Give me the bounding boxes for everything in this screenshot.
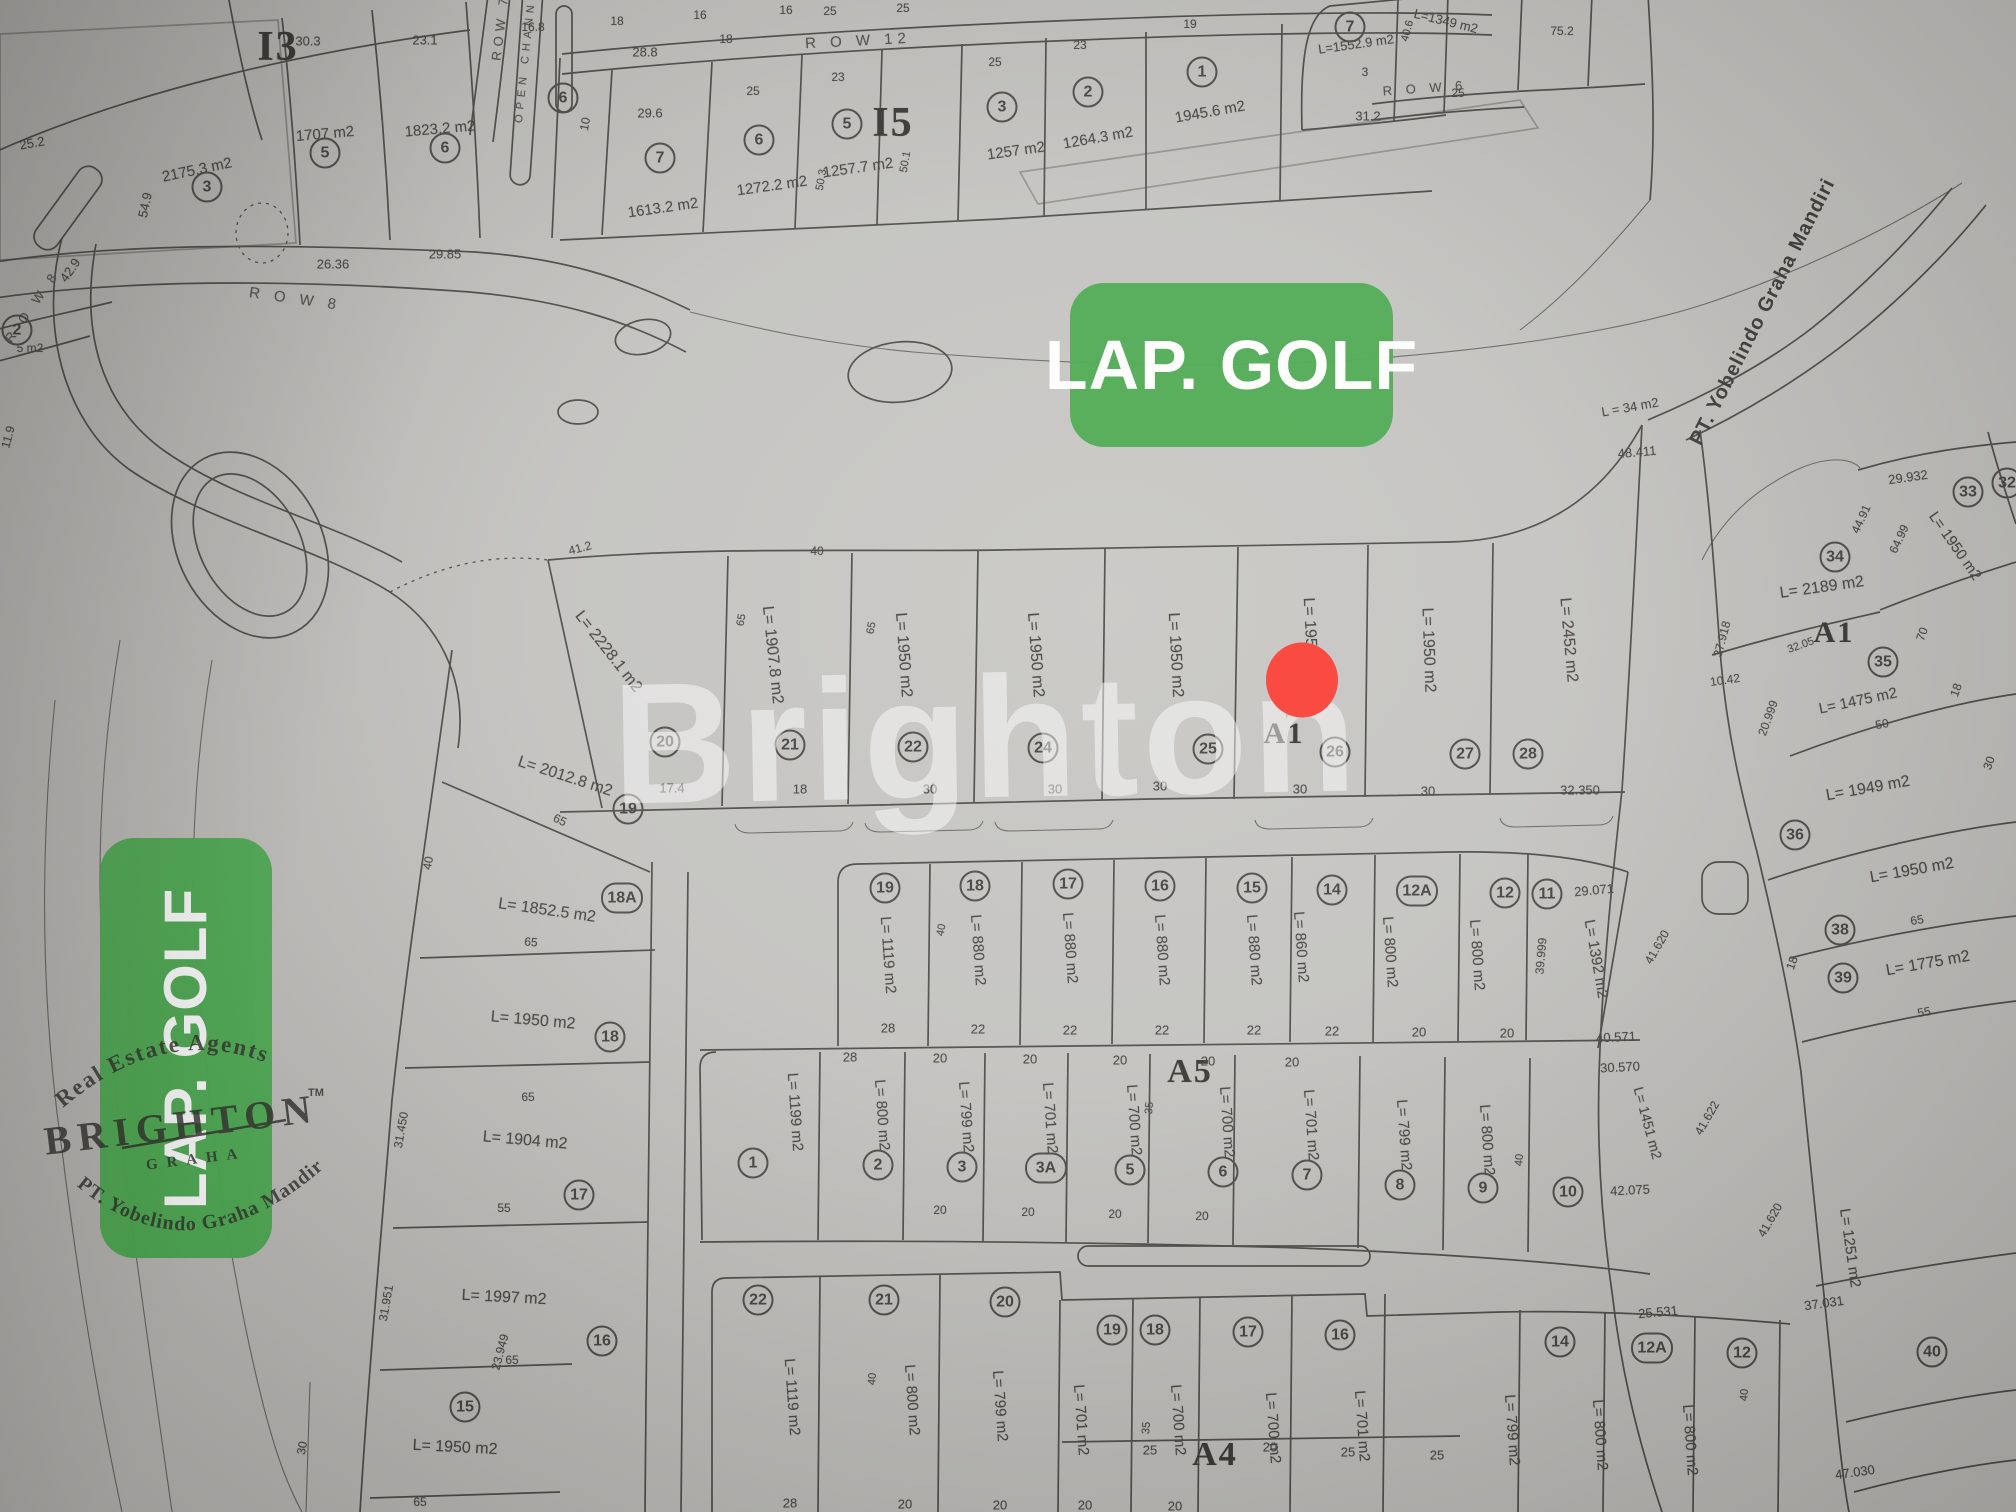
dimension-label: 22 bbox=[1247, 1024, 1261, 1037]
road-label: OPEN CHANNEL bbox=[514, 0, 540, 124]
road-label: ROW 7 bbox=[489, 0, 510, 61]
plot-area-label: L= 799 m2 bbox=[1502, 1394, 1522, 1466]
block-label: A1 bbox=[1814, 618, 1855, 648]
dimension-label: 16 bbox=[693, 9, 706, 21]
plot-number-badge: 16 bbox=[1325, 1320, 1356, 1351]
dimension-label: 65 bbox=[413, 1496, 426, 1508]
plot-number-badge: 18 bbox=[595, 1022, 626, 1053]
road-label: R O W 12 bbox=[805, 31, 911, 52]
plot-number-badge: 3A bbox=[1025, 1153, 1067, 1184]
dimension-label: 65 bbox=[521, 1091, 534, 1103]
dimension-label: 18 bbox=[1784, 955, 1800, 972]
plot-number-badge: 5 bbox=[832, 109, 863, 140]
dimension-label: 23.1 bbox=[412, 34, 437, 47]
dimension-label: 3 bbox=[1362, 66, 1369, 78]
dimension-label: 35 bbox=[1144, 1101, 1156, 1114]
dimension-label: 30.570 bbox=[1600, 1059, 1640, 1074]
plot-number-badge: 40 bbox=[1917, 1337, 1948, 1368]
dimension-label: 16.8 bbox=[521, 21, 544, 33]
dimension-label: 50.1 bbox=[899, 150, 914, 173]
plot-number-badge: 5 bbox=[1115, 1155, 1146, 1186]
road-label: R O W 8 bbox=[248, 285, 342, 313]
dimension-label: 20.999 bbox=[1756, 699, 1780, 738]
plot-area-label: 1257 m2 bbox=[986, 140, 1046, 163]
dimension-label: 29.071 bbox=[1574, 882, 1615, 898]
dimension-label: 25 bbox=[896, 2, 909, 14]
plot-area-label: L= 2452 m2 bbox=[1556, 597, 1579, 683]
dimension-label: 20 bbox=[1023, 1053, 1037, 1066]
plot-area-label: L= 701 m2 bbox=[1301, 1089, 1321, 1161]
plot-area-label: L= 2012.8 m2 bbox=[516, 754, 614, 800]
dimension-label: 20 bbox=[1195, 1210, 1208, 1222]
dimension-label: 30 bbox=[1421, 785, 1435, 798]
dimension-label: 40.6 bbox=[1400, 19, 1416, 43]
plot-number-badge: 16 bbox=[1145, 871, 1176, 902]
dimension-label: 25 bbox=[746, 85, 759, 97]
plot-number-badge: 3 bbox=[947, 1152, 978, 1183]
dimension-label: 25 bbox=[1430, 1449, 1444, 1462]
dimension-label: 25.531 bbox=[1638, 1304, 1679, 1320]
plot-number-badge: 18 bbox=[960, 871, 991, 902]
dimension-label: 40.571 bbox=[1596, 1029, 1636, 1044]
plot-area-label: L= 1775 m2 bbox=[1885, 949, 1971, 980]
block-label: A4 bbox=[1192, 1438, 1238, 1472]
plot-number-badge: 11 bbox=[1532, 879, 1563, 910]
plot-number-badge: 27 bbox=[1450, 739, 1481, 770]
plot-number-badge: 6 bbox=[1208, 1157, 1239, 1188]
block-label: I3 bbox=[257, 26, 298, 68]
dimension-label: 25 bbox=[1143, 1444, 1157, 1457]
plot-number-badge: 14 bbox=[1317, 875, 1348, 906]
plot-area-label: L= 700 m2 bbox=[1124, 1084, 1144, 1156]
plot-number-badge: 2 bbox=[1073, 77, 1104, 108]
dimension-label: 47.030 bbox=[1834, 1463, 1875, 1481]
dimension-label: 28 bbox=[881, 1022, 895, 1035]
plot-number-badge: 6 bbox=[548, 83, 579, 114]
golf-course-badge-top-text: LAP. GOLF bbox=[1045, 325, 1418, 405]
dimension-label: 22 bbox=[1063, 1024, 1077, 1037]
plot-number-badge: 18A bbox=[601, 883, 643, 914]
plot-number-badge: 19 bbox=[870, 873, 901, 904]
dimension-label: 31.2 bbox=[1355, 110, 1380, 123]
dimension-label: 30.3 bbox=[295, 35, 320, 48]
dimension-label: 22 bbox=[1155, 1024, 1169, 1037]
dimension-label: 30 bbox=[295, 1440, 309, 1455]
dimension-label: 29.932 bbox=[1887, 468, 1928, 486]
dimension-label: 28.8 bbox=[632, 46, 657, 59]
dimension-label: 50 bbox=[1874, 717, 1889, 731]
dimension-label: 31.951 bbox=[377, 1284, 395, 1322]
dimension-label: 18 bbox=[1948, 682, 1964, 699]
dimension-label: 11.9 bbox=[0, 425, 17, 450]
plot-area-label: L= 1475 m2 bbox=[1817, 685, 1898, 716]
plot-area-label: 1257.7 m2 bbox=[822, 156, 894, 181]
plot-area-label: L= 1950 m2 bbox=[1926, 509, 1984, 583]
dimension-label: 19 bbox=[1183, 18, 1196, 30]
golf-course-badge-top: LAP. GOLF bbox=[1070, 283, 1393, 447]
plot-number-badge: 6 bbox=[430, 133, 461, 164]
dimension-label: 25 bbox=[823, 5, 836, 17]
plot-area-label: L= 880 m2 bbox=[1152, 914, 1172, 986]
dimension-label: 32.350 bbox=[1560, 784, 1600, 797]
dimension-label: 40 bbox=[1514, 1153, 1526, 1166]
dimension-label: 25.2 bbox=[18, 134, 45, 151]
plot-number-badge: 22 bbox=[743, 1285, 774, 1316]
plot-area-label: 1945.6 m2 bbox=[1174, 98, 1246, 125]
block-label: I5 bbox=[872, 102, 913, 144]
plot-area-label: L=1349 m2 bbox=[1413, 7, 1480, 35]
plot-number-badge: 34 bbox=[1820, 542, 1851, 573]
dimension-label: 54.9 bbox=[136, 191, 154, 218]
plot-area-label: L= 1119 m2 bbox=[782, 1358, 802, 1436]
plot-number-badge: 12A bbox=[1396, 876, 1438, 907]
plot-number-badge: 8 bbox=[1385, 1170, 1416, 1201]
plot-number-badge: 17 bbox=[1053, 869, 1084, 900]
plot-number-badge: 39 bbox=[1828, 963, 1859, 994]
dimension-label: 30 bbox=[1981, 755, 1997, 772]
plot-area-label: L= 700 m2 bbox=[1168, 1384, 1188, 1456]
plot-number-badge: 1 bbox=[738, 1148, 769, 1179]
plot-number-badge: 7 bbox=[1335, 12, 1366, 43]
dimension-label: 65 bbox=[866, 621, 879, 635]
dimension-label: 18 bbox=[719, 33, 732, 45]
dimension-label: 41.622 bbox=[1693, 1099, 1722, 1137]
dimension-label: 20 bbox=[1201, 1055, 1215, 1068]
plot-number-badge: 12A bbox=[1631, 1333, 1673, 1364]
plot-number-badge: 10 bbox=[1553, 1177, 1584, 1208]
dimension-label: 20 bbox=[1500, 1027, 1514, 1040]
plot-number-badge: 15 bbox=[450, 1392, 481, 1423]
dimension-label: 39.999 bbox=[1533, 937, 1548, 975]
dimension-label: 42.075 bbox=[1610, 1182, 1650, 1197]
plot-number-badge: 14 bbox=[1545, 1327, 1576, 1358]
plot-area-label: L= 1392 m2 bbox=[1582, 918, 1611, 999]
plot-area-label: L= 799 m2 bbox=[1394, 1099, 1414, 1171]
plot-area-label: L= 1451 m2 bbox=[1632, 1085, 1665, 1160]
dimension-label: 20 bbox=[1113, 1054, 1127, 1067]
plot-number-badge: 17 bbox=[564, 1180, 595, 1211]
dimension-label: 28 bbox=[843, 1051, 857, 1064]
plot-area-label: L= 880 m2 bbox=[1060, 912, 1080, 984]
dimension-label: 29.85 bbox=[429, 248, 462, 261]
dimension-label: 25 bbox=[1451, 87, 1464, 99]
location-marker-dot bbox=[1266, 643, 1338, 718]
plot-area-label: L= 700 m2 bbox=[1217, 1086, 1237, 1158]
dimension-label: 40 bbox=[1739, 1388, 1751, 1401]
dimension-label: 10 bbox=[578, 116, 592, 131]
plot-number-badge: 16 bbox=[587, 1326, 618, 1357]
dimension-label: 37.918 bbox=[1711, 620, 1732, 659]
dimension-label: 25 bbox=[988, 56, 1001, 68]
plot-number-badge: 19 bbox=[1097, 1315, 1128, 1346]
plot-number-badge: 7 bbox=[645, 143, 676, 174]
dimension-label: 37.031 bbox=[1803, 1294, 1844, 1312]
plot-area-label: 1264.3 m2 bbox=[1062, 124, 1134, 151]
plot-number-badge: 32 bbox=[1992, 468, 2016, 499]
plot-area-label: L= 1950 m2 bbox=[412, 1438, 498, 1458]
plot-area-label: L= 1904 m2 bbox=[482, 1129, 568, 1152]
plot-area-label: L= 800 m2 bbox=[1590, 1399, 1610, 1471]
dimension-label: 20 bbox=[1108, 1208, 1121, 1220]
dimension-label: 42.9 bbox=[57, 256, 82, 284]
dimension-label: 20 bbox=[933, 1052, 947, 1065]
dimension-label: 29.6 bbox=[637, 107, 662, 120]
dimension-label: 20 bbox=[1285, 1056, 1299, 1069]
plot-area-label: L= 1251 m2 bbox=[1837, 1208, 1863, 1289]
dimension-label: 32.05 bbox=[1786, 636, 1816, 656]
dimension-label: 65 bbox=[736, 613, 749, 627]
plot-number-badge: 21 bbox=[869, 1285, 900, 1316]
dimension-label: 41.620 bbox=[1756, 1201, 1785, 1239]
dimension-label: 20 bbox=[1021, 1206, 1034, 1218]
dimension-label: 65 bbox=[551, 812, 568, 829]
dimension-label: 20 bbox=[1168, 1500, 1182, 1512]
dimension-label: 20 bbox=[993, 1499, 1007, 1512]
dimension-label: 55 bbox=[497, 1202, 510, 1214]
plot-area-label: L= 800 m2 bbox=[1380, 916, 1400, 988]
brighton-agency-stamp: Real Estate Agents BRIGHTON TM GRAHA PT.… bbox=[22, 980, 342, 1290]
dimension-label: 20 bbox=[898, 1498, 912, 1511]
dimension-label: 35 bbox=[1141, 1421, 1153, 1434]
plot-area-label: L= 800 m2 bbox=[1680, 1404, 1700, 1476]
plot-area-label: L = 34 m2 bbox=[1600, 396, 1659, 419]
plot-area-label: 1613.2 m2 bbox=[627, 196, 699, 221]
dimension-label: 41.2 bbox=[567, 539, 593, 557]
plot-number-badge: 38 bbox=[1825, 915, 1856, 946]
plot-area-label: L= 1950 m2 bbox=[1869, 856, 1955, 887]
plot-number-badge: 3 bbox=[987, 92, 1018, 123]
plot-number-badge: 2 bbox=[2, 315, 33, 346]
plot-area-label: L= 880 m2 bbox=[968, 914, 988, 986]
plot-number-badge: 7 bbox=[1292, 1160, 1323, 1191]
plot-number-badge: 6 bbox=[744, 125, 775, 156]
plot-number-badge: 12 bbox=[1727, 1338, 1758, 1369]
plot-number-badge: 36 bbox=[1780, 820, 1811, 851]
dimension-label: 16 bbox=[779, 4, 792, 16]
dimension-label: 10.42 bbox=[1709, 672, 1740, 688]
dimension-label: 20 bbox=[1263, 1441, 1277, 1454]
dimension-label: 20 bbox=[1412, 1026, 1426, 1039]
dimension-label: 20 bbox=[933, 1204, 946, 1216]
plot-number-badge: 15 bbox=[1237, 873, 1268, 904]
dimension-label: 22 bbox=[1325, 1025, 1339, 1038]
dimension-label: 40 bbox=[867, 1372, 879, 1385]
dimension-label: 75.2 bbox=[1550, 25, 1573, 37]
plot-number-badge: 3 bbox=[192, 172, 223, 203]
plot-area-label: L= 1997 m2 bbox=[461, 1288, 547, 1308]
dimension-label: 20 bbox=[1078, 1499, 1092, 1512]
plot-number-badge: 9 bbox=[1468, 1173, 1499, 1204]
dimension-label: 70 bbox=[1914, 626, 1930, 643]
dimension-label: 48.411 bbox=[1617, 444, 1657, 460]
dimension-label: 40 bbox=[936, 923, 949, 937]
plot-area-label: L= 1949 m2 bbox=[1825, 774, 1911, 805]
plot-number-badge: 20 bbox=[990, 1287, 1021, 1318]
plot-number-badge: 17 bbox=[1233, 1317, 1264, 1348]
dimension-label: 65 bbox=[524, 935, 538, 948]
dimension-label: 55 bbox=[1916, 1005, 1931, 1019]
plot-area-label: L= 701 m2 bbox=[1071, 1384, 1091, 1456]
dimension-label: 40 bbox=[421, 855, 435, 870]
plot-number-badge: 35 bbox=[1868, 647, 1899, 678]
brighton-watermark: Brighton bbox=[611, 645, 1362, 830]
dimension-label: 41.620 bbox=[1643, 928, 1672, 966]
plot-area-label: L= 880 m2 bbox=[1244, 914, 1264, 986]
plot-area-label: L= 860 m2 bbox=[1291, 911, 1311, 983]
plot-area-label: L= 701 m2 bbox=[1040, 1082, 1060, 1154]
scanned-plot-map: I3I5A1A1A5A4R O W 8R O W 8ROW 7OPEN CHAN… bbox=[0, 0, 2016, 1512]
plot-area-label: L= 800 m2 bbox=[902, 1364, 922, 1436]
plot-area-label: L= 1950 m2 bbox=[1419, 607, 1438, 692]
plot-area-label: L= 800 m2 bbox=[872, 1079, 892, 1151]
plot-area-label: L= 1199 m2 bbox=[785, 1072, 805, 1151]
dimension-label: 22 bbox=[971, 1023, 985, 1036]
plot-number-badge: 2 bbox=[863, 1150, 894, 1181]
plot-area-label: L= 1119 m2 bbox=[878, 916, 898, 994]
dimension-label: 26.36 bbox=[317, 258, 350, 271]
plot-number-badge: 33 bbox=[1953, 477, 1984, 508]
plot-area-label: L= 800 m2 bbox=[1467, 919, 1487, 991]
plot-area-label: L= 1852.5 m2 bbox=[497, 896, 597, 926]
dimension-label: 31.450 bbox=[392, 1111, 410, 1149]
plot-number-badge: 28 bbox=[1513, 739, 1544, 770]
dimension-label: 23 bbox=[831, 71, 844, 83]
plot-area-label: L= 799 m2 bbox=[956, 1081, 976, 1153]
dimension-label: 44.91 bbox=[1849, 503, 1873, 535]
plot-area-label: 1272.2 m2 bbox=[736, 174, 808, 199]
plot-area-label: L= 1950 m2 bbox=[490, 1009, 576, 1032]
dimension-label: 18 bbox=[610, 15, 623, 27]
plot-area-label: L= 2189 m2 bbox=[1779, 574, 1865, 602]
stamp-tm-mark: TM bbox=[308, 1087, 324, 1099]
plot-number-badge: 1 bbox=[1187, 57, 1218, 88]
plot-area-label: L= 800 m2 bbox=[1477, 1104, 1497, 1176]
plot-number-badge: 5 bbox=[310, 138, 341, 169]
dimension-label: 64.99 bbox=[1887, 523, 1911, 555]
dimension-label: 23 bbox=[1073, 39, 1086, 51]
plot-number-badge: 18 bbox=[1140, 1315, 1171, 1346]
dimension-label: 65 bbox=[1909, 913, 1924, 927]
dimension-label: 40 bbox=[810, 545, 823, 557]
dimension-label: 50.3 bbox=[815, 168, 830, 191]
dimension-label: 65 bbox=[505, 1354, 518, 1366]
plot-number-badge: 12 bbox=[1490, 878, 1521, 909]
dimension-label: 28 bbox=[783, 1497, 797, 1510]
dimension-label: 25 bbox=[1341, 1446, 1355, 1459]
plot-area-label: L= 799 m2 bbox=[990, 1370, 1010, 1442]
